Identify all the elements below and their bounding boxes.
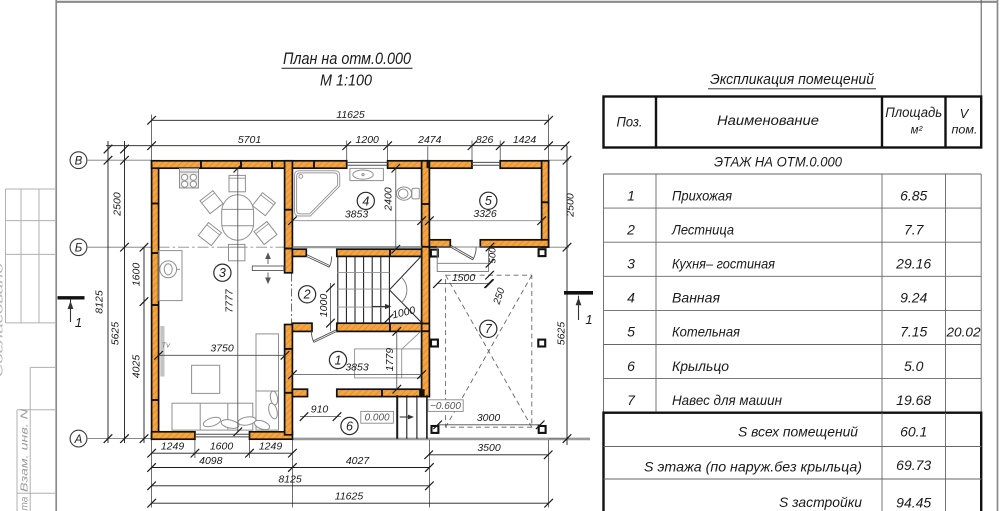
svg-text:М 1:100: М 1:100 [320, 73, 372, 90]
svg-text:94.45: 94.45 [896, 495, 931, 511]
svg-text:11625: 11625 [335, 491, 364, 503]
svg-text:826: 826 [476, 134, 494, 146]
svg-text:1: 1 [335, 353, 342, 367]
svg-text:Взам. инв. N: Взам. инв. N [20, 408, 31, 492]
svg-text:Кухня– гостиная: Кухня– гостиная [672, 256, 775, 272]
svg-text:Навес для машин: Навес для машин [672, 392, 782, 408]
svg-text:7: 7 [627, 392, 636, 408]
svg-text:Поз.: Поз. [617, 115, 643, 130]
svg-text:910: 910 [311, 404, 329, 416]
svg-text:1: 1 [627, 187, 635, 203]
svg-text:3853: 3853 [345, 362, 369, 374]
svg-text:Площадь: Площадь [885, 105, 942, 120]
svg-text:2400: 2400 [383, 187, 395, 212]
svg-text:V: V [960, 106, 970, 121]
svg-text:6: 6 [346, 419, 353, 433]
svg-text:3: 3 [219, 266, 226, 280]
svg-text:6: 6 [627, 358, 635, 374]
svg-text:ЭТАЖ НА ОТМ.0.000: ЭТАЖ НА ОТМ.0.000 [714, 154, 842, 170]
svg-text:Экспликация помещений: Экспликация помещений [710, 72, 874, 88]
svg-text:7.7: 7.7 [904, 221, 925, 237]
svg-text:Согласовано: Согласовано [0, 263, 6, 377]
svg-text:2: 2 [303, 288, 311, 302]
svg-text:В: В [75, 155, 83, 167]
svg-text:5: 5 [627, 324, 635, 340]
svg-text:11625: 11625 [336, 109, 365, 121]
svg-text:1249: 1249 [161, 441, 185, 453]
svg-text:5625: 5625 [556, 322, 568, 346]
svg-text:пом.: пом. [952, 125, 978, 137]
svg-text:Прихожая: Прихожая [672, 187, 732, 203]
svg-text:А: А [74, 434, 83, 446]
svg-text:Лестница: Лестница [671, 221, 734, 237]
svg-text:1000: 1000 [318, 294, 330, 318]
svg-text:6.85: 6.85 [900, 187, 927, 203]
svg-text:0.000: 0.000 [365, 413, 390, 424]
svg-text:20.02: 20.02 [945, 326, 980, 340]
svg-text:1600: 1600 [210, 441, 234, 453]
svg-text:Котельная: Котельная [672, 324, 740, 340]
svg-text:3750: 3750 [210, 342, 234, 354]
svg-text:Б: Б [75, 242, 83, 254]
svg-text:та: та [20, 496, 31, 510]
svg-text:500: 500 [487, 247, 498, 264]
svg-text:Крыльцо: Крыльцо [672, 358, 729, 374]
svg-text:Tv: Tv [162, 341, 172, 350]
svg-text:4: 4 [362, 194, 369, 208]
svg-text:2474: 2474 [417, 134, 442, 146]
svg-text:69.73: 69.73 [896, 457, 931, 473]
svg-text:3853: 3853 [345, 209, 369, 221]
svg-text:Наименование: Наименование [717, 113, 819, 128]
svg-text:S всех помещений: S всех помещений [738, 424, 858, 440]
svg-text:−0.600: −0.600 [430, 401, 461, 412]
svg-text:1779: 1779 [384, 348, 396, 372]
svg-text:5: 5 [485, 194, 492, 208]
svg-text:1: 1 [585, 312, 592, 327]
svg-text:3500: 3500 [477, 442, 501, 454]
svg-text:2500: 2500 [565, 193, 577, 218]
svg-text:3326: 3326 [473, 208, 497, 220]
svg-text:м²: м² [911, 125, 924, 137]
svg-text:4: 4 [627, 290, 635, 306]
svg-text:9.24: 9.24 [900, 290, 927, 306]
svg-text:3: 3 [627, 256, 635, 272]
svg-text:5625: 5625 [110, 322, 122, 346]
svg-text:7: 7 [485, 322, 493, 336]
svg-text:3000: 3000 [477, 412, 501, 424]
svg-text:1249: 1249 [259, 441, 283, 453]
svg-text:1600: 1600 [131, 263, 143, 287]
svg-text:2: 2 [626, 221, 635, 237]
svg-text:19.68: 19.68 [896, 392, 931, 408]
svg-text:5701: 5701 [238, 134, 261, 146]
svg-text:S застройки: S застройки [779, 494, 862, 510]
svg-text:8125: 8125 [278, 473, 302, 485]
svg-text:Ванная: Ванная [672, 290, 721, 306]
svg-text:60.1: 60.1 [900, 424, 927, 440]
svg-text:1424: 1424 [513, 134, 537, 146]
svg-text:План на отм.0.000: План на отм.0.000 [283, 50, 412, 68]
svg-text:S этажа (по наруж.без крыл: S этажа (по наруж.без крыльца) [644, 459, 862, 475]
svg-text:4027: 4027 [346, 455, 371, 467]
svg-text:1500: 1500 [452, 272, 476, 284]
svg-text:1: 1 [75, 315, 82, 330]
svg-text:2500: 2500 [112, 192, 124, 217]
svg-text:7777: 7777 [224, 288, 236, 313]
svg-text:4025: 4025 [131, 355, 143, 379]
svg-text:29.16: 29.16 [895, 256, 931, 272]
svg-text:8125: 8125 [94, 290, 106, 314]
svg-text:7.15: 7.15 [900, 324, 927, 340]
svg-text:1200: 1200 [356, 134, 380, 146]
svg-text:5.0: 5.0 [904, 358, 924, 374]
svg-text:4098: 4098 [199, 455, 223, 467]
